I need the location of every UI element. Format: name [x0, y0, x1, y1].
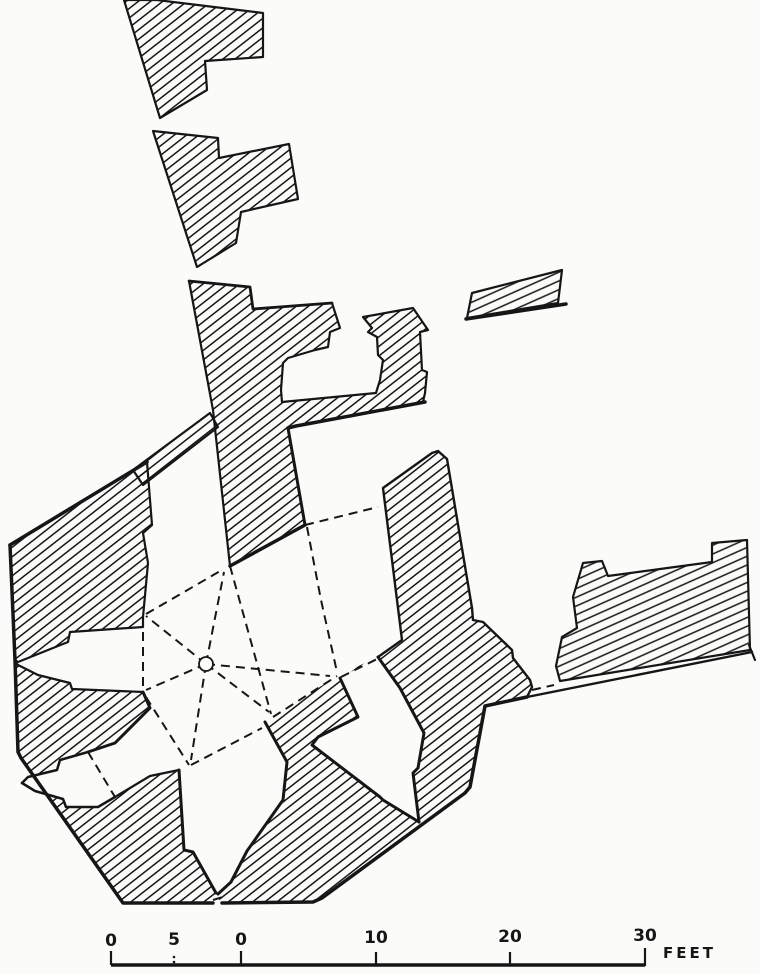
- site-plan-drawing: 050102030FEET: [0, 0, 760, 974]
- scale-bar-dotted-tick: [173, 961, 176, 964]
- scanned-plan-page: 050102030FEET: [0, 0, 760, 974]
- scale-bar-label: 20: [498, 927, 522, 947]
- scale-bar-dotted-tick: [173, 956, 176, 959]
- scale-bar-unit-label: FEET: [663, 944, 716, 962]
- scale-bar-label: 0: [105, 931, 117, 951]
- scale-bar-label: 30: [633, 926, 657, 946]
- plan-figure: 050102030FEET: [0, 0, 760, 974]
- scale-bar-label: 5: [168, 930, 180, 950]
- scale-bar-label: 0: [235, 930, 247, 950]
- scale-bar-label: 10: [364, 928, 388, 948]
- central-pier-circle: [199, 657, 213, 671]
